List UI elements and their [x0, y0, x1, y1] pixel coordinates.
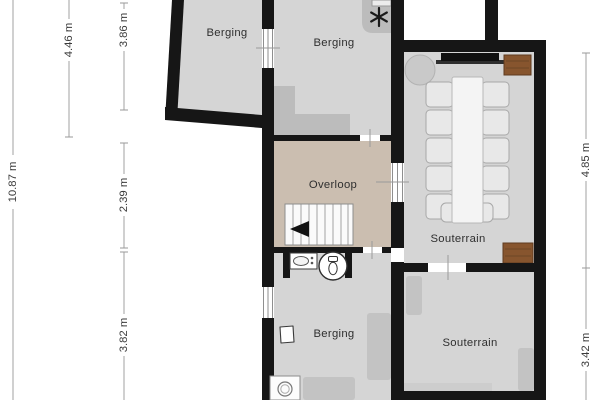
- wall-top-stub: [485, 0, 498, 40]
- dimension-4-85: 4.85 m: [580, 53, 592, 268]
- dimension-label: 2.39 m: [118, 178, 130, 213]
- radiator: [441, 53, 499, 61]
- cabinet: [367, 313, 391, 380]
- hand-basin-icon: [280, 326, 294, 343]
- wall-souterrain-divider: [404, 263, 428, 272]
- stairs: [285, 204, 353, 245]
- room-label-berging-lower: Berging: [313, 328, 354, 340]
- dimension-label: 3.86 m: [118, 13, 130, 48]
- door-opening: [391, 248, 404, 262]
- wall-mid-spine: [391, 262, 404, 400]
- washing-machine-icon: [270, 376, 300, 400]
- chair: [426, 82, 453, 107]
- chair: [482, 82, 509, 107]
- room-label-souterrain-upper: Souterrain: [430, 233, 485, 245]
- cabinet-top-edge: [372, 0, 391, 6]
- wall-overloop-top: [380, 135, 391, 141]
- dimension-2-39: 2.39 m: [118, 143, 130, 248]
- dining-set: [426, 77, 509, 223]
- dimension-3-82: 3.82 m: [118, 252, 130, 400]
- wall-souterrain-top: [404, 40, 546, 52]
- window: [262, 287, 274, 318]
- cabinet: [518, 348, 534, 391]
- wall-overloop-bottom: [382, 247, 391, 253]
- staircase: [285, 204, 353, 245]
- room-souterrain-lower-floor: [404, 272, 534, 391]
- dimension-label: 4.85 m: [580, 143, 592, 178]
- chair: [482, 110, 509, 135]
- wall-right: [534, 40, 546, 400]
- wall-mid-spine: [391, 202, 404, 248]
- wood-stove: [504, 55, 531, 75]
- dimension-total-height: 10.87 m: [7, 0, 19, 400]
- dimension-4-46: 4.46 m: [63, 0, 75, 137]
- room-label-berging-top-left: Berging: [206, 27, 247, 39]
- room-label-berging-top: Berging: [313, 37, 354, 49]
- room-label-overloop: Overloop: [309, 179, 357, 191]
- dimension-label: 3.82 m: [118, 318, 130, 353]
- wall-left-spine: [262, 0, 274, 29]
- dimension-3-42: 3.42 m: [580, 268, 592, 400]
- cabinet: [406, 276, 422, 315]
- toilet-icon: [319, 252, 347, 280]
- chair: [482, 166, 509, 191]
- chair: [426, 138, 453, 163]
- dimension-label: 4.46 m: [63, 23, 75, 58]
- dimension-label: 10.87 m: [7, 162, 19, 203]
- dimension-3-86: 3.86 m: [118, 3, 130, 110]
- room-label-souterrain-lower: Souterrain: [442, 337, 497, 349]
- floor-plan: Berging Berging Overloop Souterrain Berg…: [0, 0, 600, 400]
- boiler-tank-icon: [405, 55, 435, 85]
- dimension-label: 3.42 m: [580, 333, 592, 368]
- wall-left-spine: [262, 68, 274, 287]
- wall-souterrain-divider: [466, 263, 534, 272]
- cabinet: [303, 377, 355, 400]
- sink-icon: [290, 253, 317, 269]
- chair: [426, 166, 453, 191]
- wood-stove: [503, 243, 533, 263]
- cabinet-low: [404, 383, 492, 391]
- chair: [426, 110, 453, 135]
- wall-toilet-stub: [283, 253, 290, 278]
- wall-overloop-top: [274, 135, 360, 141]
- wall-mid-spine: [391, 0, 404, 163]
- wall-bottom: [391, 391, 546, 400]
- room-berging-top-left-floor: [176, 0, 262, 116]
- chair: [482, 138, 509, 163]
- dining-table: [452, 77, 483, 223]
- wall-overloop-bottom: [274, 247, 363, 253]
